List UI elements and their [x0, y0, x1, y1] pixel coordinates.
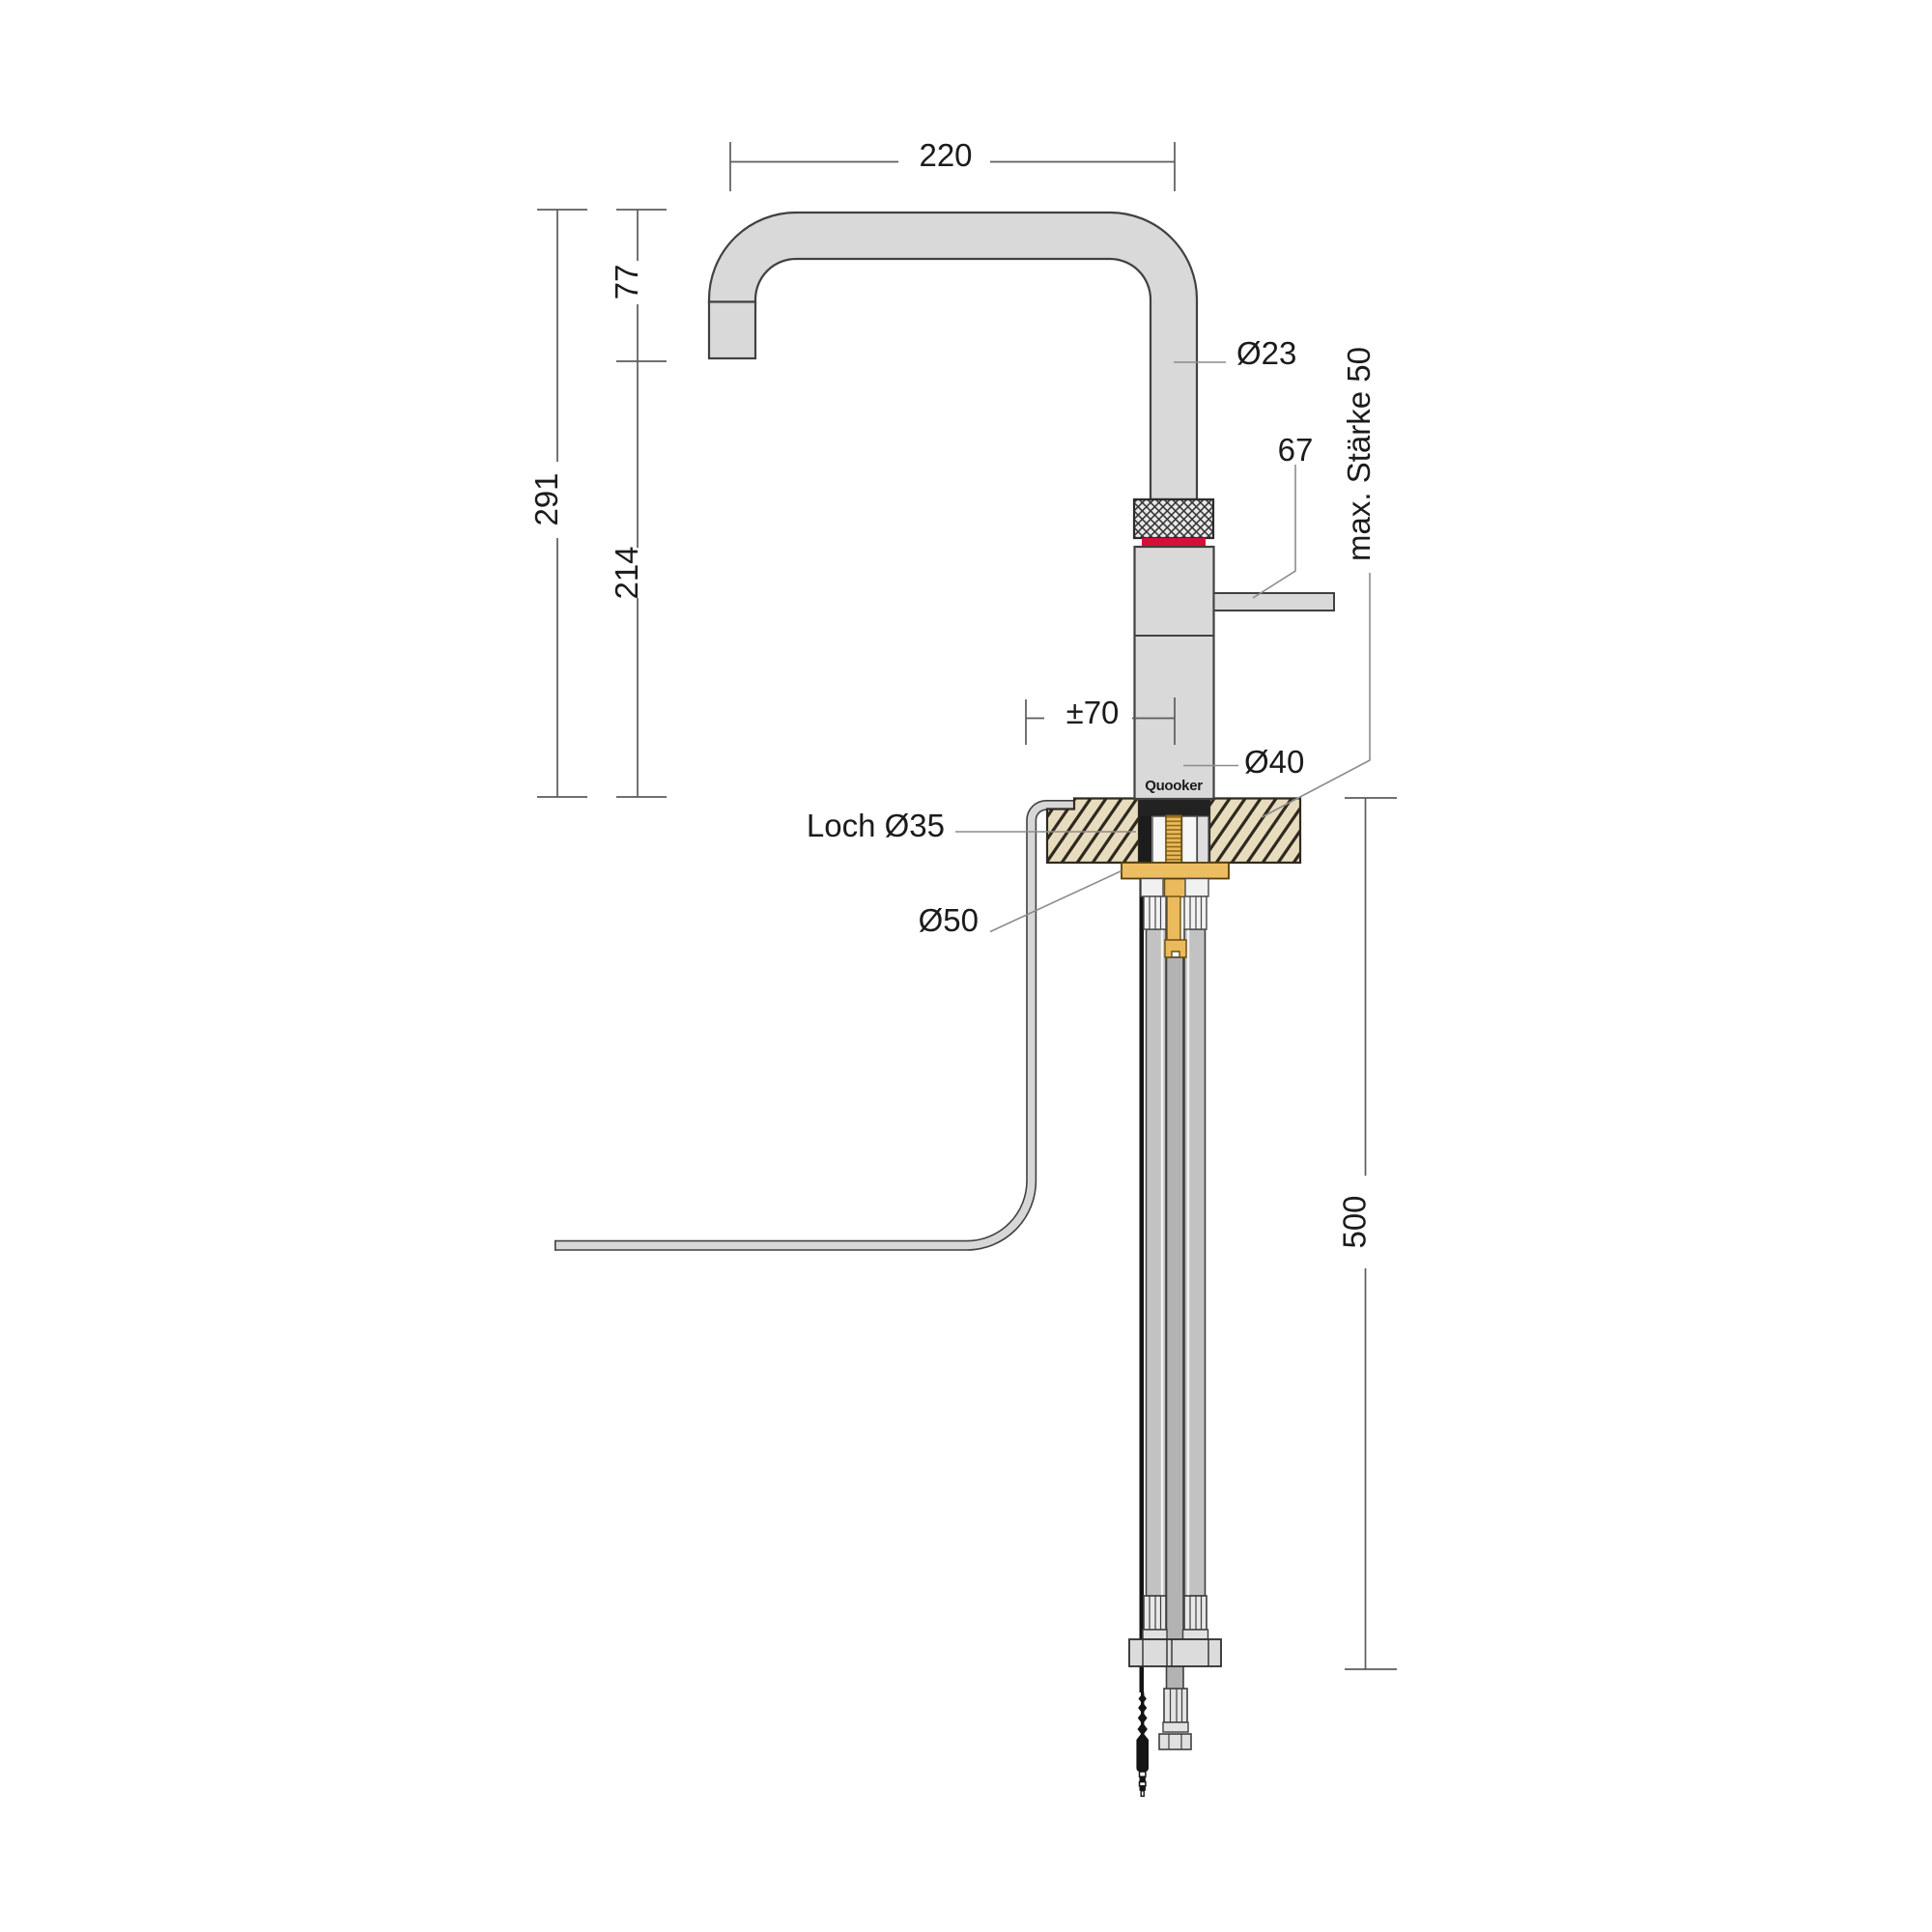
svg-text:291: 291	[528, 472, 564, 526]
svg-text:77: 77	[609, 265, 644, 300]
svg-text:220: 220	[919, 137, 972, 173]
svg-text:Ø50: Ø50	[919, 902, 979, 938]
svg-text:Ø23: Ø23	[1236, 335, 1296, 371]
svg-text:Quooker: Quooker	[1145, 778, 1203, 794]
svg-text:67: 67	[1278, 432, 1314, 468]
svg-text:±70: ±70	[1066, 695, 1120, 730]
svg-text:214: 214	[609, 546, 644, 599]
svg-text:500: 500	[1337, 1195, 1373, 1248]
svg-text:Loch Ø35: Loch Ø35	[807, 808, 945, 843]
svg-text:max. Stärke 50: max. Stärke 50	[1341, 347, 1377, 561]
svg-text:Ø40: Ø40	[1244, 744, 1304, 780]
